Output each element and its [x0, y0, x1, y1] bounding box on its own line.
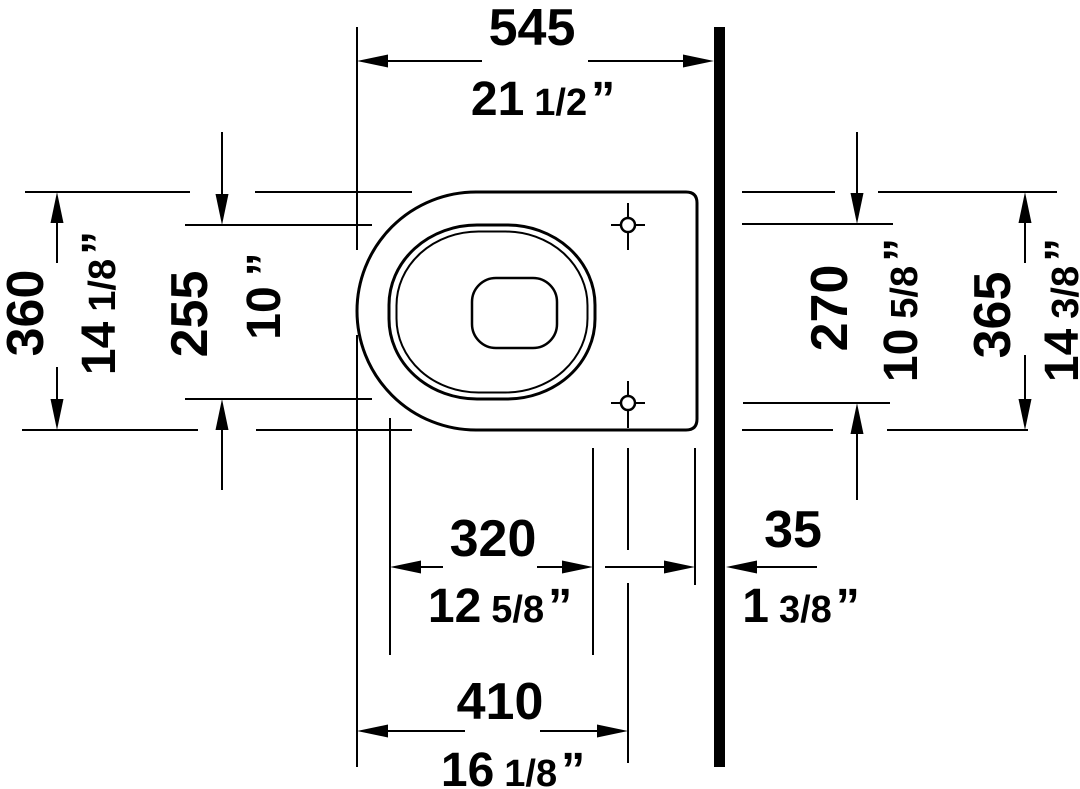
arrowhead: [51, 399, 64, 430]
arrowhead: [1019, 192, 1032, 223]
label-bolt-hole-spacing-inch: 105/8”: [875, 238, 928, 382]
arrowhead: [357, 725, 388, 738]
arrowhead: [851, 193, 864, 224]
dim-bolt-hole-spacing: 270 105/8”: [801, 132, 928, 500]
dim-bowl-opening-depth: 320 125/8”: [390, 510, 593, 633]
arrowhead: [664, 561, 695, 574]
label-wall-clearance-inch: 13/8”: [742, 580, 860, 633]
dim-rear-width: 365 143/8”: [964, 192, 1080, 430]
label-rear-width-mm: 365: [964, 272, 1022, 359]
label-front-width-mm: 360: [0, 270, 55, 357]
arrowhead: [216, 399, 229, 430]
label-bowl-opening-width-inch: 10”: [238, 252, 291, 339]
label-wall-clearance-mm: 35: [764, 501, 822, 559]
label-bolt-hole-spacing-mm: 270: [801, 265, 859, 352]
label-bowl-opening-depth-inch: 125/8”: [428, 580, 572, 633]
arrowhead: [390, 561, 421, 574]
toilet-fixture: [357, 192, 697, 430]
arrowhead: [683, 55, 714, 68]
label-overall-depth-inch: 211/2”: [471, 73, 615, 126]
arrowhead: [51, 192, 64, 223]
dim-front-width: 360 141/8”: [0, 192, 126, 430]
label-bowl-opening-depth-mm: 320: [450, 510, 537, 568]
label-front-to-bolt-depth-inch: 161/8”: [441, 744, 585, 789]
dim-overall-depth: 545 211/2”: [357, 0, 714, 126]
arrowhead: [726, 561, 757, 574]
label-front-width-inch: 141/8”: [73, 231, 126, 375]
technical-drawing: 545 211/2” 360 141/8” 255 10” 270 105/8”…: [0, 0, 1080, 789]
dim-wall-clearance: 35 13/8”: [605, 501, 860, 633]
drawing-svg: 545 211/2” 360 141/8” 255 10” 270 105/8”…: [0, 0, 1080, 789]
dim-bowl-opening-width: 255 10”: [161, 132, 291, 490]
label-rear-width-inch: 143/8”: [1036, 238, 1080, 382]
dim-front-to-bolt-depth: 410 161/8”: [357, 673, 628, 789]
arrowhead: [851, 403, 864, 434]
label-front-to-bolt-depth-mm: 410: [457, 673, 544, 731]
arrowhead: [216, 194, 229, 225]
drain-opening: [472, 278, 557, 348]
wall-line: [714, 27, 725, 767]
arrowhead: [357, 55, 388, 68]
label-overall-depth-mm: 545: [489, 0, 576, 57]
arrowhead: [562, 561, 593, 574]
arrowhead: [597, 725, 628, 738]
label-bowl-opening-width-mm: 255: [161, 271, 219, 358]
arrowhead: [1019, 399, 1032, 430]
